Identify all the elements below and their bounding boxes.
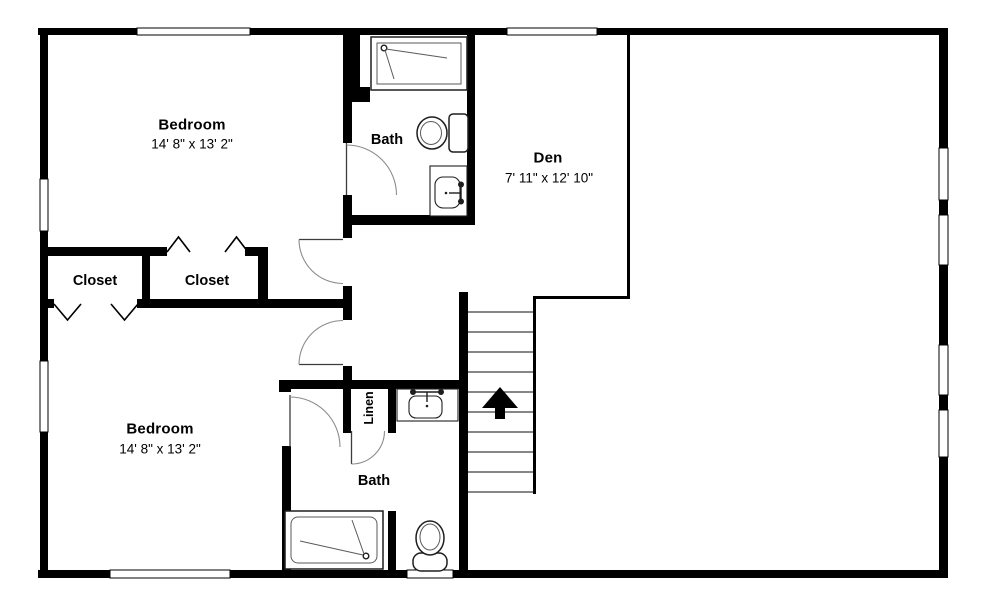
wall-right: [939, 28, 948, 578]
wall-bath1-left-flare: [343, 87, 370, 102]
window-right-upper-1: [939, 148, 948, 200]
window-left-bedroom2: [40, 361, 48, 432]
wall-linen-right: [388, 389, 396, 433]
bedroom-bottom-name: Bedroom: [126, 422, 193, 437]
wall-den-bottom-thin: [533, 296, 630, 299]
closet-right-door-right-panel: [225, 237, 248, 252]
bedroom-top-name: Bedroom: [158, 118, 225, 133]
door-linen: [352, 431, 385, 464]
toilet-bottom-icon: [413, 521, 447, 571]
closet-right-name: Closet: [185, 274, 229, 289]
closet-left-door-left-panel: [54, 304, 81, 320]
window-bottom-bedroom2: [110, 570, 230, 578]
interior-walls: [44, 33, 475, 572]
bedroom-top-dims: 14' 8" x 13' 2": [151, 137, 233, 151]
wall-den-right-thin: [627, 33, 630, 299]
wall-linen-left: [343, 389, 351, 433]
door-bedroom-top: [299, 240, 343, 284]
window-right-lower-1: [939, 345, 948, 395]
wall-bath1-left-upper: [343, 33, 360, 90]
shower-top-icon: [371, 37, 467, 90]
wall-closet-right: [258, 252, 268, 304]
den-dims: 7' 11" x 12' 10": [505, 171, 593, 185]
bath-bottom-name: Bath: [358, 474, 390, 489]
door-bedroom-bottom: [299, 321, 343, 365]
wall-tub-right: [388, 511, 396, 571]
wall-closet-divider: [142, 250, 150, 304]
wall-hall-west-mid: [343, 286, 352, 320]
window-top-bedroom1: [137, 28, 250, 35]
bath-top-name: Bath: [371, 133, 403, 148]
tub-bottom-icon: [285, 511, 383, 569]
closet-left-name: Closet: [73, 274, 117, 289]
wall-stairs-right-thin: [533, 296, 536, 494]
door-bath-bottom: [290, 395, 340, 447]
closet-right-door-left-panel: [167, 237, 190, 252]
sink-top-icon: [430, 166, 467, 216]
wall-hall-north-stub: [44, 299, 54, 308]
thin-partitions: [533, 33, 630, 494]
window-right-lower-2: [939, 410, 948, 457]
bedroom-bottom-dims: 14' 8" x 13' 2": [119, 442, 201, 456]
wall-bath2-top: [279, 380, 459, 389]
wall-bath2-top-stub: [279, 380, 291, 392]
wall-bath1-left-mid: [343, 100, 352, 143]
window-left-bedroom1: [40, 179, 48, 231]
door-bath-top: [347, 143, 397, 195]
floorplan-svg: [0, 0, 1000, 610]
window-top-den: [507, 28, 597, 35]
wall-stairs-left: [459, 292, 468, 572]
floor-plan: Bedroom 14' 8" x 13' 2" Bath Den 7' 11" …: [0, 0, 1000, 610]
sink-bottom-icon: [397, 389, 458, 421]
toilet-top-icon: [417, 114, 468, 152]
linen-name: Linen: [362, 391, 376, 424]
window-right-upper-2: [939, 215, 948, 265]
wall-hall-north: [137, 299, 351, 308]
closet-left-door-right-panel: [111, 304, 138, 320]
den-name: Den: [534, 151, 563, 166]
